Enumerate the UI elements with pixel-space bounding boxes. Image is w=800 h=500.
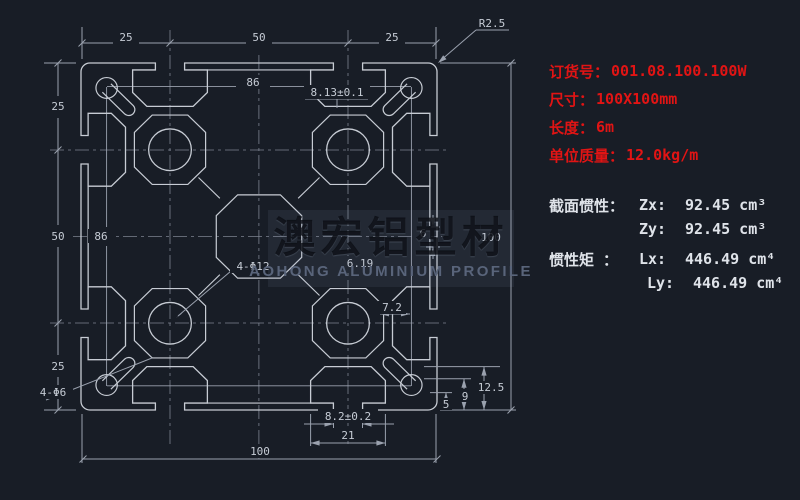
order-number-value: 001.08.100.100W	[611, 62, 746, 80]
zy-row: Zy: 92.45 cm³	[549, 217, 783, 241]
zx-row: 截面惯性： Zx: 92.45 cm³	[549, 193, 783, 217]
zy-label: Zy:	[639, 220, 685, 238]
dim-left-25-bottom: 25	[51, 360, 64, 373]
moment-of-inertia-label: 惯性矩 ：	[549, 249, 639, 270]
length-value: 6m	[596, 118, 614, 136]
dim-holes-large: 4-Φ12	[236, 260, 269, 273]
length-label: 长度：	[549, 117, 594, 138]
size-row: 尺寸： 100X100mm	[549, 85, 746, 113]
dim-6-19: 6.19	[347, 257, 374, 270]
dim-6: 6	[420, 227, 427, 240]
dim-bottom-100: 100	[250, 445, 270, 458]
dim-bottom-slot-opening: 8.2±0.2	[325, 410, 371, 423]
zx-value: 92.45 cm³	[685, 196, 766, 214]
lx-row: 惯性矩 ： Lx: 446.49 cm⁴	[549, 247, 783, 271]
arrowheads	[176, 55, 487, 445]
dim-5: 5	[443, 398, 450, 411]
dim-top-slot-opening: 8.13±0.1	[311, 86, 364, 99]
dim-top-25-left: 25	[119, 31, 132, 44]
dim-right-100: 100	[481, 231, 501, 244]
unit-weight-label: 单位质量：	[549, 145, 624, 166]
dim-top-50: 50	[252, 31, 265, 44]
unit-weight-value: 12.0kg/m	[626, 146, 698, 164]
ly-value: 446.49 cm⁴	[693, 274, 783, 292]
dim-slot-cavity-width: 21	[341, 429, 354, 442]
centerlines	[48, 30, 450, 459]
section-modulus-label: 截面惯性：	[549, 195, 639, 216]
length-row: 长度： 6m	[549, 113, 746, 141]
ly-row: Ly: 446.49 cm⁴	[549, 271, 783, 295]
spec-panel: 订货号： 001.08.100.100W 尺寸： 100X100mm 长度： 6…	[549, 57, 746, 169]
dim-12-5: 12.5	[478, 381, 505, 394]
lx-value: 446.49 cm⁴	[685, 250, 775, 268]
dim-9: 9	[462, 390, 469, 403]
dim-pitch-top: 86	[246, 76, 259, 89]
dim-left-50: 50	[51, 230, 64, 243]
ly-label: Ly:	[639, 274, 693, 292]
size-value: 100X100mm	[596, 90, 677, 108]
size-label: 尺寸：	[549, 89, 594, 110]
lx-label: Lx:	[639, 250, 685, 268]
unit-weight-row: 单位质量： 12.0kg/m	[549, 141, 746, 169]
zy-value: 92.45 cm³	[685, 220, 766, 238]
order-number-row: 订货号： 001.08.100.100W	[549, 57, 746, 85]
dim-top-25-right: 25	[385, 31, 398, 44]
zx-label: Zx:	[639, 196, 685, 214]
dim-holes-small: 4-Φ6	[40, 386, 67, 399]
order-number-label: 订货号：	[549, 61, 609, 82]
dim-corner-radius: R2.5	[479, 17, 506, 30]
dim-left-25-top: 25	[51, 100, 64, 113]
dim-wall: 7.2	[382, 301, 402, 314]
dim-pitch-left: 86	[94, 230, 107, 243]
section-properties-panel: 截面惯性： Zx: 92.45 cm³ Zy: 92.45 cm³ 惯性矩 ： …	[549, 193, 783, 295]
